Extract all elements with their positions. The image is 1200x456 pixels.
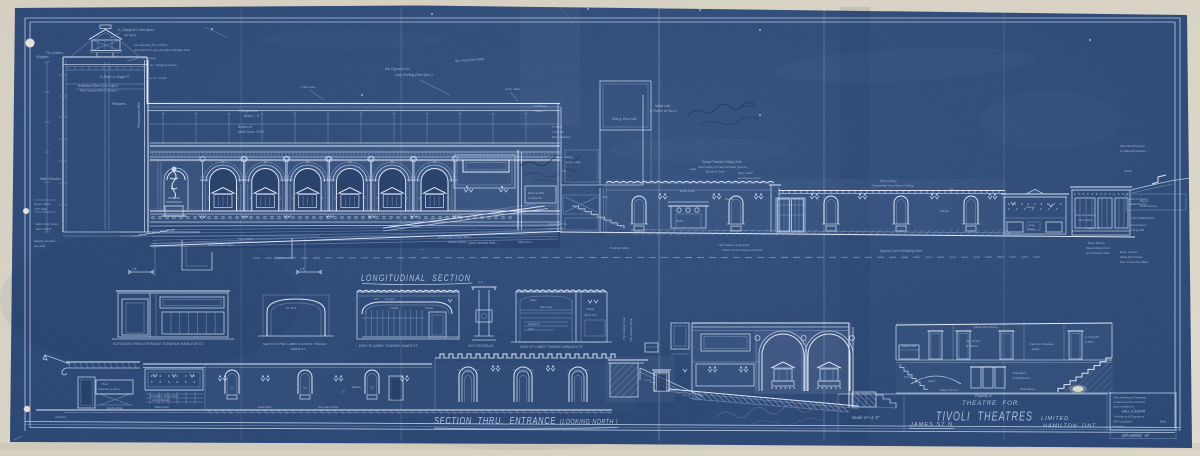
svg-text:& Plaster on Sus p.: & Plaster on Sus p. (650, 109, 677, 113)
svg-text:Finish up from East end Floor: Finish up from East end Floor (722, 248, 764, 252)
svg-text:Boiler: Boiler (676, 219, 685, 223)
svg-text:Vacle Glass: Vacle Glass (1078, 218, 1093, 222)
svg-text:Iron Roofing Co. & Plant: Iron Roofing Co. & Plant (134, 43, 168, 47)
svg-text:ELEVATION THRU ENTRANCE TOWAR: ELEVATION THRU ENTRANCE TOWARDS HAMILTON… (113, 342, 204, 346)
svg-text:Metal Lath: Metal Lath (655, 104, 671, 108)
svg-text:Air Viewing Floor: Air Viewing Floor (737, 176, 762, 180)
svg-text:Equal Plan: Equal Plan (902, 344, 916, 348)
svg-text:HALL & DUERR: HALL & DUERR (1122, 410, 1146, 414)
svg-text:Room to Mblr: Room to Mblr (528, 191, 544, 195)
svg-text:Slb Gypsum Co.: Slb Gypsum Co. (385, 67, 411, 71)
svg-text:2.6: 2.6 (299, 267, 305, 271)
svg-text:4″ Brick: 4″ Brick (552, 125, 563, 129)
svg-text:upon request to: upon request to (1113, 405, 1134, 409)
svg-text:Filing Roof Clear: Filing Roof Clear (1120, 255, 1143, 259)
svg-text:G.I. Hanging Gutter: G.I. Hanging Gutter (150, 63, 178, 67)
svg-text:Road Steps: Road Steps (1020, 387, 1036, 391)
svg-text:JAMES ST N: JAMES ST N (909, 422, 953, 428)
svg-text:All around & I ground walls &: All around & I ground walls & Budget Cor… (133, 48, 191, 52)
svg-text:DRAWING Nº: DRAWING Nº (1122, 433, 1150, 438)
svg-text:& Dress Rm: & Dress Rm (528, 196, 543, 200)
svg-text:Brass Rail: Brass Rail (540, 305, 553, 309)
svg-text:LONGITUDINAL SECTION: LONGITUDINAL SECTION (361, 273, 471, 284)
svg-text:of and must be returned: of and must be returned (1113, 400, 1145, 404)
svg-text:Scale ⅛″=1′-0″: Scale ⅛″=1′-0″ (852, 415, 880, 420)
svg-text:Joints Painted: Joints Painted (152, 398, 170, 402)
svg-text:Stair g. Drop Hall: Stair g. Drop Hall (612, 117, 637, 121)
svg-text:2′-6″ wide: 2′-6″ wide (33, 207, 47, 211)
svg-text:Parking Walls: Parking Walls (610, 246, 629, 250)
svg-text:EXIT VESTIBULE: EXIT VESTIBULE (468, 344, 494, 348)
svg-text:Flr Arch: Flr Arch (385, 297, 395, 301)
svg-text:by Contractor More: by Contractor More (1086, 251, 1110, 255)
svg-text:Stairs Hdlg: Stairs Hdlg (566, 160, 581, 164)
svg-text:Fire Convection Bldg: Fire Convection Bldg (1120, 260, 1148, 264)
svg-text:Haight Hall: Haight Hall (1086, 226, 1100, 230)
svg-text:Struct. Help: Struct. Help (34, 202, 50, 206)
svg-text:Ceil lining: Ceil lining (533, 104, 547, 108)
svg-text:Open: Open (928, 379, 936, 383)
svg-text:Sickly: Sickly (1124, 169, 1132, 173)
svg-text:SECTION THRU LOBBY LOOKING TOW: SECTION THRU LOBBY LOOKING TOWARD (263, 342, 328, 346)
svg-text:5/8: 5/8 (374, 297, 378, 301)
svg-text:- Mtl -: - Mtl - (560, 169, 568, 173)
svg-text:Motor Rwy Wiring: Motor Rwy Wiring (974, 325, 998, 329)
svg-text:Auditorium Keep Plan 1: Auditorium Keep Plan 1 (437, 235, 472, 239)
svg-text:Operators: Operators (528, 322, 541, 326)
svg-text:Elev. 100.6: Elev. 100.6 (36, 227, 51, 231)
svg-text:& Plstr: & Plstr (1085, 340, 1094, 344)
svg-text:Player Rooms: Player Rooms (940, 388, 959, 392)
svg-text:T. Bar Area: T. Bar Area (300, 85, 315, 89)
svg-text:Plaster: Plaster (940, 209, 950, 213)
svg-text:Filing 100: Filing 100 (1131, 228, 1144, 232)
svg-text:K. Cold Wtr: K. Cold Wtr (1085, 335, 1100, 339)
svg-text:Suspended from Airport Ceiling: Suspended from Airport Ceiling (872, 184, 914, 188)
svg-text:1st Floor: 1st Floor (55, 415, 68, 419)
svg-text:see wall: see wall (34, 244, 45, 248)
svg-text:Permanent: Permanent (1131, 223, 1146, 227)
svg-text:Spray Finished Ceiling Over: Spray Finished Ceiling Over (702, 160, 743, 164)
svg-text:Sloping Ground: Sloping Ground (34, 239, 55, 243)
svg-text:Mail Hand Require: Mail Hand Require (1120, 144, 1145, 148)
svg-text:sobl: sobl (602, 195, 608, 199)
svg-text:Fans Air Passage: Fans Air Passage (1030, 342, 1054, 346)
svg-text:G.I. Cond.: G.I. Cond. (153, 76, 167, 80)
svg-text:Main Pilasters: Main Pilasters (40, 177, 62, 181)
svg-text:Architects & Engineers: Architects & Engineers (1113, 415, 1145, 419)
svg-text:Bottom of: Bottom of (238, 125, 253, 129)
svg-text:509 Lancaster: 509 Lancaster (1113, 420, 1133, 424)
svg-text:Marble Plate: Marble Plate (107, 406, 123, 410)
svg-text:HAMILTON ONT.: HAMILTON ONT. (1043, 424, 1098, 430)
svg-text:Lath Sand & Fray Floor: Lath Sand & Fray Floor (718, 243, 751, 247)
svg-text:3 Tile wtr: 3 Tile wtr (552, 130, 565, 134)
svg-text:THEATRE FOR.: THEATRE FOR. (962, 400, 1021, 407)
svg-text:Bldg: Bldg (1160, 420, 1166, 424)
svg-text:Plaster: Plaster (586, 307, 594, 311)
svg-text:Proscenium Wire: Proscenium Wire (137, 102, 141, 128)
svg-text:Approx Line of Existing Floor: Approx Line of Existing Floor (879, 249, 923, 253)
svg-text:Tivoli: Tivoli (101, 382, 108, 386)
svg-text:Upon second floor ↓: Upon second floor ↓ (468, 241, 498, 245)
svg-text:Open: Open (530, 298, 537, 302)
svg-text:Rail Stairs: Rail Stairs (1013, 371, 1027, 375)
svg-text:solid: solid (690, 167, 697, 171)
svg-text:4 ply Roofing (See Spec.): 4 ply Roofing (See Spec.) (395, 73, 433, 77)
svg-text:Lath & Plaster: Lath & Plaster (1129, 197, 1149, 201)
svg-text:Exit Airy Heating: Exit Airy Heating (1076, 213, 1096, 217)
svg-text:Elev. Prop. Floor: Elev. Prop. Floor (36, 222, 59, 226)
svg-text:Hang: Hang (1032, 347, 1040, 351)
svg-text:JAMES ST.: JAMES ST. (290, 347, 306, 351)
svg-text:Extg. Frames: Extg. Frames (1120, 250, 1138, 254)
svg-text:Property of: Property of (975, 394, 993, 398)
svg-text:Plaster: Plaster (352, 385, 362, 389)
svg-text:Steel Truss +26.5: Steel Truss +26.5 (238, 130, 264, 134)
svg-text:Plaster: Plaster (725, 197, 735, 201)
svg-text:Bolts 2 - 6: Bolts 2 - 6 (244, 114, 259, 118)
svg-text:Plaster: Plaster (425, 306, 433, 310)
svg-text:END OF LOBBY TOWARD JAMES ST.: END OF LOBBY TOWARD JAMES ST. (359, 344, 418, 348)
svg-text:SIDE OF LOBBY TOWARD WINDOW ST: SIDE OF LOBBY TOWARD WINDOW ST. (520, 345, 584, 349)
svg-text:Cel. Snow: Cel. Snow (966, 339, 981, 343)
svg-text:Candle: Candle (390, 306, 399, 310)
svg-text:Hard Plast: Hard Plast (258, 405, 272, 409)
svg-text:Conc. Slab: Conc. Slab (505, 87, 520, 91)
svg-text:(for light): (for light) (124, 33, 136, 37)
svg-text:Brown & Teal: Brown & Teal (706, 170, 725, 174)
svg-text:High: High (528, 327, 534, 331)
svg-text:SECTION THRU. ENTRANCE: SECTION THRU. ENTRANCE (434, 416, 556, 427)
svg-text:Wood Coil: Wood Coil (584, 313, 597, 317)
svg-text:LIMITED: LIMITED (1041, 416, 1069, 422)
svg-text:G Rope to Stage Fl.: G Rope to Stage Fl. (100, 75, 130, 79)
svg-text:Hang Ceilg: Hang Ceilg (680, 189, 695, 193)
svg-text:Skylights: Skylights (36, 55, 49, 59)
svg-text:Marquee by others: Marquee by others (98, 387, 121, 391)
svg-text:Hamilton: Hamilton (1113, 425, 1125, 429)
svg-text:Tile Casing: Tile Casing (140, 56, 156, 60)
svg-text:& 3 Besced Girders: & 3 Besced Girders (1120, 149, 1147, 153)
svg-text:King Ceiling: King Ceiling (880, 179, 897, 183)
svg-text:Asbestos Fibre Curt. mfg G.: Asbestos Fibre Curt. mfg G. (77, 84, 119, 88)
svg-text:Placed Wood Floor: Placed Wood Floor (1086, 246, 1111, 250)
svg-text:Seats Auditor: Seats Auditor (448, 240, 467, 244)
svg-text:Main Door: Main Door (518, 240, 533, 244)
svg-text:Wee Cafe?: Wee Cafe? (738, 171, 753, 175)
svg-text:Hard Walls: Hard Walls (238, 237, 254, 241)
svg-text:(LOOKING NORTH ): (LOOKING NORTH ) (560, 419, 618, 426)
svg-text:Main Floor: Main Floor (155, 405, 170, 409)
svg-text:Store: Store (1028, 227, 1035, 231)
svg-text:6 Foot: 6 Foot (904, 375, 912, 379)
svg-text:Drug: Drug (1029, 223, 1035, 227)
svg-text:Pilasters: Pilasters (112, 102, 126, 106)
svg-text:7 Rigid: 7 Rigid (533, 109, 543, 113)
svg-text:6. (Straight) G Wire glass: 6. (Straight) G Wire glass (118, 28, 154, 32)
svg-text:Stone Sitting: Stone Sitting (556, 155, 573, 159)
svg-text:Brick Adaption: Brick Adaption (552, 135, 572, 139)
svg-text:The Gallery Floor: The Gallery Floor (622, 316, 626, 340)
svg-text:Boiler Battery: Boiler Battery (1088, 241, 1105, 245)
svg-text:Antique Stone Flat: Antique Stone Flat (207, 243, 233, 247)
svg-text:Plaster: Plaster (1026, 205, 1036, 209)
svg-text:2.6: 2.6 (131, 267, 137, 271)
svg-text:Flr. Arch: Flr. Arch (286, 306, 297, 310)
svg-text:4'.0: 4'.0 (478, 280, 483, 284)
svg-text:Add Ceiling Ornament Plain gr: Add Ceiling Ornament Plain ground (697, 165, 747, 169)
svg-text:Metal Furring: Metal Furring (1129, 202, 1147, 206)
svg-text:New Hard Plast: New Hard Plast (318, 405, 338, 409)
svg-text:to Mezzanine: to Mezzanine (1013, 376, 1031, 380)
svg-text:& Plaster: & Plaster (966, 344, 979, 348)
svg-text:List of Material Fl.: List of Material Fl. (1131, 216, 1155, 220)
svg-text:This Drawing is Property: This Drawing is Property (1113, 396, 1146, 400)
svg-text:P.L.: P.L. (950, 187, 955, 191)
svg-text:The Granny Floor: The Granny Floor (629, 317, 633, 342)
